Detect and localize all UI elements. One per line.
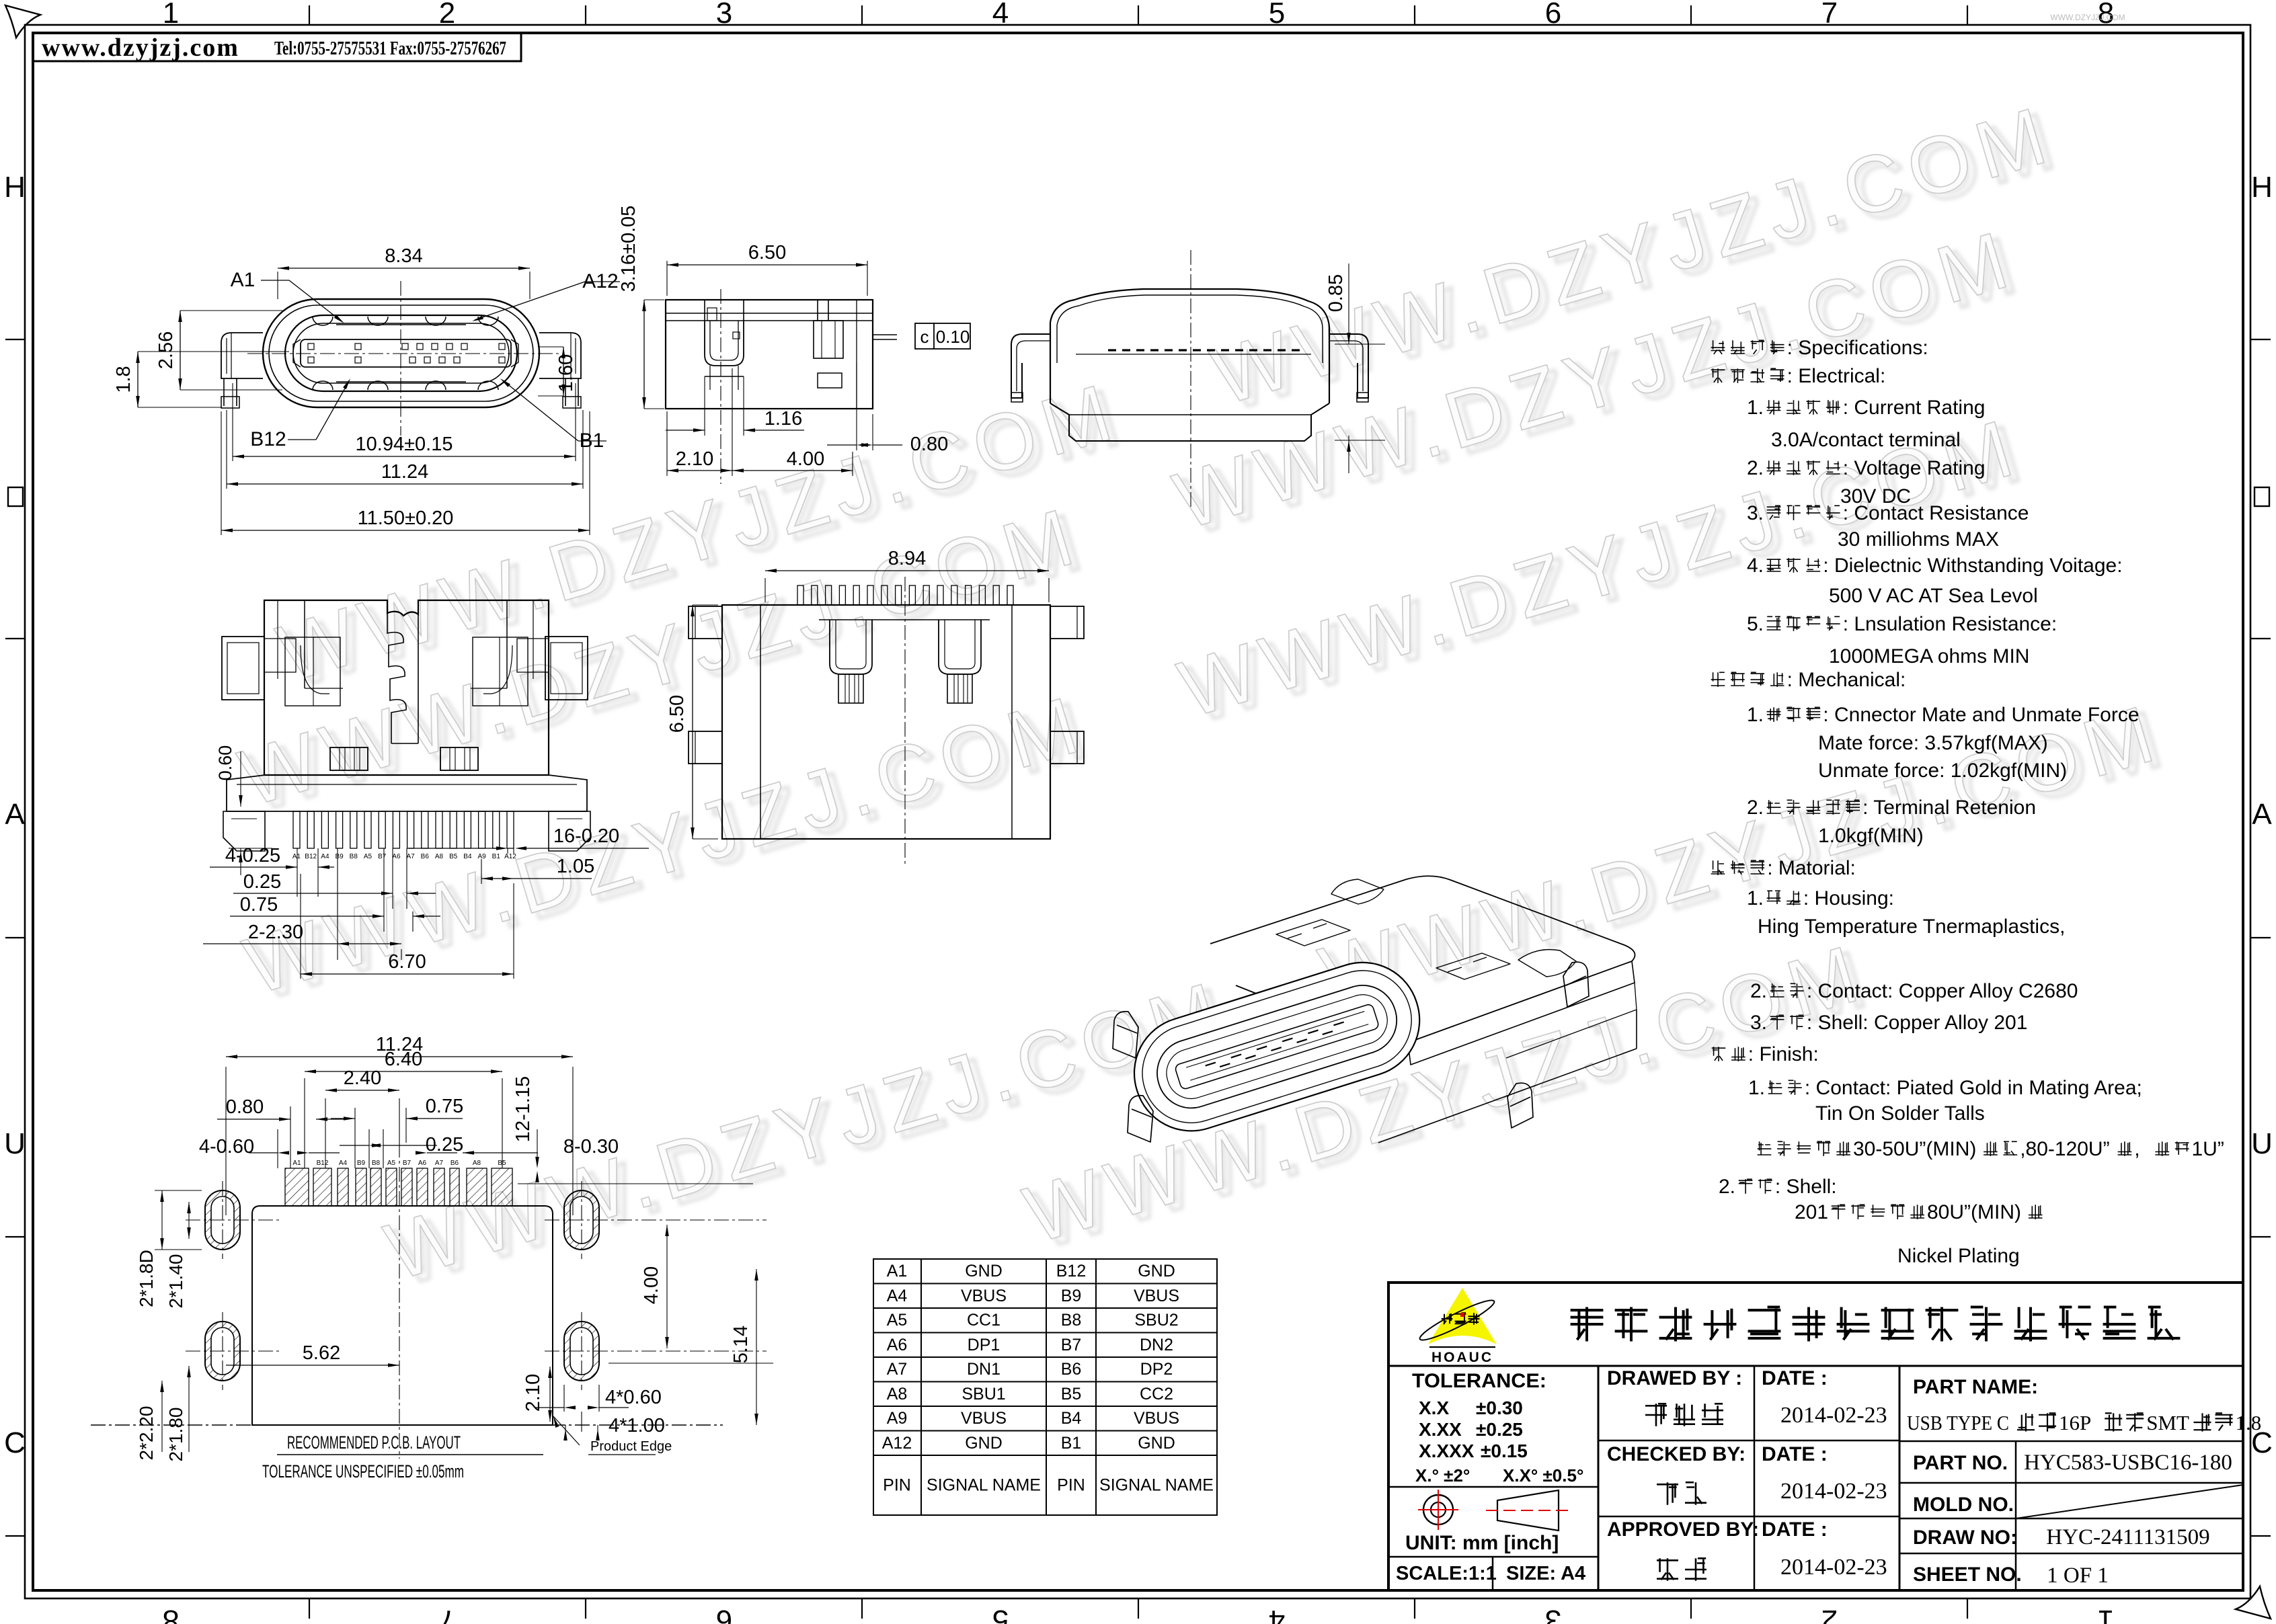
svg-text:1U”: 1U” xyxy=(2192,1138,2224,1160)
svg-text:2014-02-23: 2014-02-23 xyxy=(1780,1479,1887,1504)
svg-text:6.40: 6.40 xyxy=(385,1049,422,1070)
svg-text:B8: B8 xyxy=(1061,1311,1082,1330)
svg-text:: Cnnector Mate and Unmate: : Cnnector Mate and Unmate Force xyxy=(1823,704,2139,726)
svg-text:2.: 2. xyxy=(1750,980,1767,1002)
svg-text:2.10: 2.10 xyxy=(676,448,713,470)
svg-text:A1: A1 xyxy=(292,1160,301,1167)
svg-text:A12: A12 xyxy=(504,853,516,860)
svg-text:DATE :: DATE : xyxy=(1762,1443,1828,1465)
svg-text:VBUS: VBUS xyxy=(961,1287,1007,1305)
svg-text:A12: A12 xyxy=(882,1434,912,1453)
svg-text:5.62: 5.62 xyxy=(303,1342,340,1364)
svg-text:A6: A6 xyxy=(392,853,401,860)
svg-text:2: 2 xyxy=(439,0,455,30)
svg-text:1.16: 1.16 xyxy=(764,408,802,430)
svg-text:CC1: CC1 xyxy=(967,1311,1000,1330)
svg-text:VBUS: VBUS xyxy=(1134,1409,1179,1428)
svg-text:GND: GND xyxy=(965,1434,1003,1453)
svg-text:4-0.60: 4-0.60 xyxy=(199,1136,254,1158)
svg-text:A1: A1 xyxy=(292,853,301,860)
svg-text:1.60: 1.60 xyxy=(555,354,577,392)
svg-text:B6: B6 xyxy=(1061,1360,1082,1379)
svg-text:GND: GND xyxy=(965,1262,1003,1281)
svg-text:: Mechanical:: : Mechanical: xyxy=(1787,669,1906,691)
svg-text:3.: 3. xyxy=(1747,502,1764,524)
svg-text:A8: A8 xyxy=(887,1385,908,1404)
svg-text:SIGNAL NAME: SIGNAL NAME xyxy=(927,1476,1041,1495)
svg-text:3.16±0.05: 3.16±0.05 xyxy=(618,206,639,292)
svg-text:A: A xyxy=(2252,798,2272,831)
svg-text:6: 6 xyxy=(1545,0,1561,30)
svg-text:1.8: 1.8 xyxy=(2236,1411,2262,1434)
svg-text:4: 4 xyxy=(992,0,1009,30)
svg-text:: Matorial:: : Matorial: xyxy=(1767,857,1856,879)
svg-text:8.34: 8.34 xyxy=(385,245,422,267)
svg-text:A8: A8 xyxy=(473,1160,481,1167)
svg-text:1.: 1. xyxy=(1747,887,1764,909)
svg-text:SHEET NO.: SHEET NO. xyxy=(1913,1564,2022,1586)
svg-text:Tel:0755-27575531 Fax:0755-27: Tel:0755-27575531 Fax:0755-27576267 xyxy=(274,38,506,59)
svg-text:U: U xyxy=(4,1127,26,1160)
svg-text:SIGNAL NAME: SIGNAL NAME xyxy=(1099,1476,1214,1495)
svg-text:2.: 2. xyxy=(1719,1176,1735,1198)
svg-text:B7: B7 xyxy=(403,1160,411,1167)
svg-text:,80-120U”: ,80-120U” xyxy=(2020,1138,2109,1160)
svg-text:C: C xyxy=(4,1426,26,1459)
svg-text:SMT: SMT xyxy=(2146,1411,2189,1434)
svg-text:2.40: 2.40 xyxy=(344,1067,381,1089)
svg-text:: Finish:: : Finish: xyxy=(1748,1043,1819,1065)
svg-text:A4: A4 xyxy=(887,1287,908,1305)
svg-text:B7: B7 xyxy=(378,853,387,860)
svg-text:5.14: 5.14 xyxy=(730,1326,752,1363)
svg-text:3: 3 xyxy=(1545,1604,1561,1624)
svg-text:B9: B9 xyxy=(335,853,344,860)
svg-text:4*1.00: 4*1.00 xyxy=(609,1415,665,1436)
svg-text:Mate force: 3.57kgf(MAX): Mate force: 3.57kgf(MAX) xyxy=(1818,732,2048,754)
svg-text:2.56: 2.56 xyxy=(155,331,177,369)
svg-text:4.00: 4.00 xyxy=(787,448,824,470)
svg-text:,: , xyxy=(2134,1138,2140,1160)
svg-text:HOAUC: HOAUC xyxy=(1431,1350,1493,1365)
svg-text:16P: 16P xyxy=(2059,1411,2091,1434)
svg-text:2.: 2. xyxy=(1747,797,1764,819)
svg-text:: Shell:: : Shell: xyxy=(1775,1176,1837,1198)
svg-text:1.: 1. xyxy=(1747,704,1764,726)
svg-text:: Specifications:: : Specifications: xyxy=(1787,337,1928,359)
svg-text:5: 5 xyxy=(1269,0,1285,30)
svg-text:VBUS: VBUS xyxy=(1134,1287,1179,1305)
svg-text:B4: B4 xyxy=(1061,1409,1082,1428)
svg-text:B7: B7 xyxy=(1061,1336,1082,1354)
svg-text:3: 3 xyxy=(716,0,732,30)
svg-text:2.: 2. xyxy=(1747,457,1764,479)
svg-text:1: 1 xyxy=(2098,1604,2114,1624)
svg-text:CHECKED BY:: CHECKED BY: xyxy=(1607,1443,1745,1465)
svg-text:4.: 4. xyxy=(1747,555,1764,577)
svg-text:DN1: DN1 xyxy=(967,1360,1000,1379)
svg-text:A: A xyxy=(5,798,25,831)
svg-text:DRAWED BY :: DRAWED BY : xyxy=(1607,1367,1742,1389)
svg-text:SCALE:1:1: SCALE:1:1 xyxy=(1396,1563,1497,1584)
svg-text:HYC-2411131509: HYC-2411131509 xyxy=(2046,1525,2209,1549)
svg-text:B9: B9 xyxy=(357,1160,366,1167)
svg-text:6.50: 6.50 xyxy=(748,242,786,263)
svg-text:Hing Temperature Tnermaplas: Hing Temperature Tnermaplastics, xyxy=(1758,916,2065,938)
svg-text:±0.25: ±0.25 xyxy=(1476,1419,1523,1440)
svg-text:X.° ±2°: X.° ±2° xyxy=(1415,1465,1470,1486)
svg-text:HYC583-USBC16-180: HYC583-USBC16-180 xyxy=(2024,1451,2232,1475)
svg-text:A1: A1 xyxy=(231,269,256,291)
svg-text:2.10: 2.10 xyxy=(522,1374,544,1412)
svg-text:7: 7 xyxy=(1821,0,1838,30)
svg-text:: Electrical:: : Electrical: xyxy=(1787,365,1886,387)
svg-text:8-0.30: 8-0.30 xyxy=(563,1136,619,1158)
svg-text:A7: A7 xyxy=(406,853,415,860)
svg-text:TOLERANCE:: TOLERANCE: xyxy=(1412,1370,1546,1392)
svg-text:DATE :: DATE : xyxy=(1762,1367,1828,1389)
svg-text:1.8: 1.8 xyxy=(113,366,134,393)
svg-text:H: H xyxy=(2251,171,2273,204)
svg-text:0.25: 0.25 xyxy=(426,1134,463,1155)
svg-text:16-0.20: 16-0.20 xyxy=(553,825,619,847)
svg-text:B12: B12 xyxy=(305,853,317,860)
svg-text:VBUS: VBUS xyxy=(961,1409,1007,1428)
svg-text:: Contact: Piated Gold in: : Contact: Piated Gold in Mating Area; xyxy=(1805,1077,2142,1099)
svg-text:PART NO.: PART NO. xyxy=(1913,1452,2008,1474)
svg-text:0.80: 0.80 xyxy=(226,1096,264,1118)
svg-text:2-2.30: 2-2.30 xyxy=(248,922,303,943)
svg-text:0.80: 0.80 xyxy=(910,434,948,455)
svg-text:B12: B12 xyxy=(250,428,286,450)
svg-text:B5: B5 xyxy=(449,853,458,860)
svg-text:PIN: PIN xyxy=(1057,1476,1085,1495)
svg-text:: Lnsulation Resistance:: : Lnsulation Resistance: xyxy=(1843,613,2057,635)
svg-text:11.24: 11.24 xyxy=(381,461,428,483)
svg-text:PIN: PIN xyxy=(883,1476,911,1495)
svg-text:A1: A1 xyxy=(887,1262,908,1281)
svg-text:30-50U”(MIN): 30-50U”(MIN) xyxy=(1853,1138,1976,1160)
svg-text:A8: A8 xyxy=(435,853,444,860)
svg-text:A5: A5 xyxy=(887,1311,908,1330)
svg-text:0.60: 0.60 xyxy=(215,745,235,781)
svg-text:A5: A5 xyxy=(364,853,372,860)
svg-text:1 OF 1: 1 OF 1 xyxy=(2047,1564,2109,1588)
svg-text:2*1.80: 2*1.80 xyxy=(165,1408,186,1462)
svg-text:B1: B1 xyxy=(492,853,501,860)
svg-text:500 V AC AT Sea Levol: 500 V AC AT Sea Levol xyxy=(1829,585,2038,607)
svg-text:4*0.60: 4*0.60 xyxy=(605,1387,662,1408)
svg-text:6.50: 6.50 xyxy=(666,695,688,733)
svg-text:DRAW NO:: DRAW NO: xyxy=(1913,1527,2017,1549)
svg-text:4.00: 4.00 xyxy=(641,1266,662,1304)
svg-text:X.X: X.X xyxy=(1419,1397,1449,1418)
svg-text:MOLD NO.: MOLD NO. xyxy=(1913,1494,2014,1516)
svg-text:PART NAME:: PART NAME: xyxy=(1913,1376,2038,1398)
svg-text:8: 8 xyxy=(163,1604,179,1624)
svg-text:4-0.25: 4-0.25 xyxy=(225,845,280,866)
svg-text:DN2: DN2 xyxy=(1140,1336,1173,1354)
svg-text:RECOMMENDED P.C.B. LAYOUT: RECOMMENDED P.C.B. LAYOUT xyxy=(287,1432,461,1453)
svg-text:: Housing:: : Housing: xyxy=(1803,887,1894,909)
svg-text:SBU2: SBU2 xyxy=(1134,1311,1178,1330)
svg-text:B6: B6 xyxy=(450,1160,459,1167)
svg-text:A4: A4 xyxy=(321,853,329,860)
svg-text:2014-02-23: 2014-02-23 xyxy=(1780,1555,1887,1580)
svg-text:3.0A/contact terminal: 3.0A/contact terminal xyxy=(1771,429,1961,451)
svg-text:1.05: 1.05 xyxy=(557,856,594,877)
svg-text:80U”(MIN): 80U”(MIN) xyxy=(1927,1201,2021,1223)
svg-text:WWW.DZYJZJ.COM: WWW.DZYJZJ.COM xyxy=(2050,13,2125,22)
svg-text:±0.30: ±0.30 xyxy=(1476,1397,1523,1418)
svg-text:2: 2 xyxy=(1821,1604,1838,1624)
svg-text:DATE :: DATE : xyxy=(1762,1518,1828,1541)
svg-text:c: c xyxy=(920,327,929,347)
svg-text:B9: B9 xyxy=(1061,1287,1082,1305)
svg-text:www.dzyjzj.com: www.dzyjzj.com xyxy=(42,34,239,62)
svg-text:A6: A6 xyxy=(418,1160,427,1167)
svg-text:4: 4 xyxy=(1269,1604,1285,1624)
svg-text:6.70: 6.70 xyxy=(388,951,426,973)
svg-text:CC2: CC2 xyxy=(1140,1385,1173,1404)
svg-text:1.0kgf(MIN): 1.0kgf(MIN) xyxy=(1818,825,1924,847)
svg-text:5.: 5. xyxy=(1747,613,1764,635)
svg-text:B12: B12 xyxy=(317,1160,329,1167)
svg-text:30 milliohms MAX: 30 milliohms MAX xyxy=(1838,528,1999,551)
svg-text:Nickel Plating: Nickel Plating xyxy=(1897,1245,2020,1267)
svg-text:1.: 1. xyxy=(1747,397,1764,419)
svg-text:5: 5 xyxy=(992,1604,1009,1624)
svg-text:GND: GND xyxy=(1138,1262,1175,1281)
svg-text:8.94: 8.94 xyxy=(888,548,926,569)
svg-text:A7: A7 xyxy=(435,1160,444,1167)
svg-text:: Voltage Rating: : Voltage Rating xyxy=(1843,457,1986,479)
svg-text:SIZE: A4: SIZE: A4 xyxy=(1506,1563,1585,1584)
svg-text:0.25: 0.25 xyxy=(243,871,281,893)
svg-text:: Dielectnic Withstanding Vo: : Dielectnic Withstanding Voitage: xyxy=(1823,555,2122,577)
svg-text:A9: A9 xyxy=(477,853,486,860)
svg-text:A5: A5 xyxy=(387,1160,396,1167)
svg-text:APPROVED BY:: APPROVED BY: xyxy=(1607,1518,1759,1541)
svg-text:X.XX: X.XX xyxy=(1419,1419,1462,1440)
svg-text:0.10: 0.10 xyxy=(936,327,970,347)
svg-text:Product Edge: Product Edge xyxy=(590,1439,672,1454)
svg-text:U: U xyxy=(2251,1127,2273,1160)
svg-text:±0.15: ±0.15 xyxy=(1481,1440,1528,1461)
svg-text:A4: A4 xyxy=(339,1160,348,1167)
svg-text:1: 1 xyxy=(163,0,179,30)
svg-text:201: 201 xyxy=(1795,1201,1828,1223)
svg-text:B4: B4 xyxy=(463,853,472,860)
svg-text:0.75: 0.75 xyxy=(240,894,278,916)
svg-text:B12: B12 xyxy=(1056,1262,1086,1281)
svg-text:A9: A9 xyxy=(887,1409,908,1428)
svg-text:2*1.40: 2*1.40 xyxy=(165,1254,186,1309)
svg-text:2*2.20: 2*2.20 xyxy=(136,1406,157,1461)
svg-text:1.: 1. xyxy=(1748,1077,1765,1099)
svg-text:1000MEGA ohms MIN: 1000MEGA ohms MIN xyxy=(1829,645,2029,667)
svg-text:0.75: 0.75 xyxy=(426,1096,463,1117)
svg-text:: Shell: Copper Alloy 201: : Shell: Copper Alloy 201 xyxy=(1807,1012,2028,1034)
svg-text:2014-02-23: 2014-02-23 xyxy=(1780,1403,1887,1428)
svg-text:USB TYPE C: USB TYPE C xyxy=(1907,1411,2009,1434)
svg-text:Tin On Solder Talls: Tin On Solder Talls xyxy=(1815,1102,1985,1125)
svg-text:DP2: DP2 xyxy=(1140,1360,1173,1379)
svg-text:X.XXX: X.XXX xyxy=(1419,1440,1475,1461)
svg-text:: Contact Resistance: : Contact Resistance xyxy=(1843,502,2029,524)
svg-text:H: H xyxy=(4,171,26,204)
svg-text:Unmate force: 1.02kgf(MIN): Unmate force: 1.02kgf(MIN) xyxy=(1818,760,2067,782)
svg-text:A6: A6 xyxy=(887,1336,908,1354)
svg-text:10.94±0.15: 10.94±0.15 xyxy=(356,434,453,455)
svg-text:SBU1: SBU1 xyxy=(962,1385,1005,1404)
svg-text:: Contact: Copper Alloy C268: : Contact: Copper Alloy C2680 xyxy=(1807,980,2078,1002)
svg-text:0.85: 0.85 xyxy=(1325,274,1347,312)
svg-text:GND: GND xyxy=(1138,1434,1175,1453)
svg-text:3.: 3. xyxy=(1750,1012,1767,1034)
svg-text:X.X° ±0.5°: X.X° ±0.5° xyxy=(1503,1465,1583,1486)
svg-text:B6: B6 xyxy=(421,853,430,860)
svg-text:B8: B8 xyxy=(350,853,358,860)
svg-text:2*1.8D: 2*1.8D xyxy=(136,1250,157,1307)
svg-text:B5: B5 xyxy=(1061,1385,1082,1404)
svg-text:11.50±0.20: 11.50±0.20 xyxy=(358,507,454,529)
svg-text:A7: A7 xyxy=(887,1360,908,1379)
svg-text:: Current Rating: : Current Rating xyxy=(1843,397,1986,419)
svg-text:B1: B1 xyxy=(1061,1434,1082,1453)
svg-text:12-1.15: 12-1.15 xyxy=(512,1076,534,1142)
svg-text:B8: B8 xyxy=(372,1160,381,1167)
svg-text:7: 7 xyxy=(439,1604,455,1624)
svg-text:: Terminal Retenion: : Terminal Retenion xyxy=(1862,797,2036,819)
svg-text:UNIT: mm [inch]: UNIT: mm [inch] xyxy=(1405,1532,1559,1554)
svg-text:DP1: DP1 xyxy=(968,1336,1000,1354)
svg-text:6: 6 xyxy=(716,1604,732,1624)
svg-text:TOLERANCE UNSPECIFIED ±0.05mm: TOLERANCE UNSPECIFIED ±0.05mm xyxy=(262,1461,464,1481)
